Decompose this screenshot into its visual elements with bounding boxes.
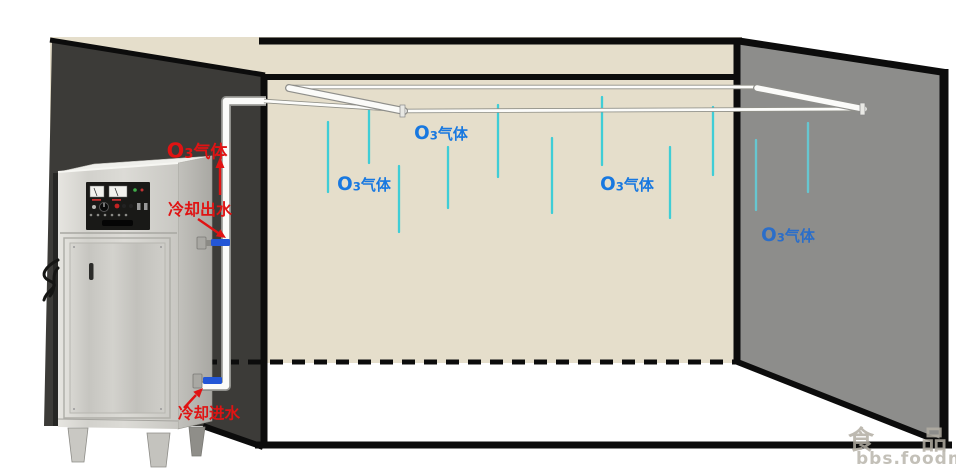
indicator-light-red [141,189,144,192]
ozone-room-diagram: O3气体 冷却出水 冷却进水 O3气体 O3气体 O3气体 O3气体 食 品 论… [0,0,956,472]
panel-button[interactable] [122,204,126,208]
pipe-joint-cap [400,105,405,117]
door-screw [73,246,75,248]
o3-gas-label-machine: O3气体 [167,141,228,162]
mini-toggle[interactable] [144,203,148,210]
valve-fitting-lower [193,374,202,388]
machine-control-panel [86,182,150,230]
watermark-url: bbs.foodma [856,449,956,469]
door-screw [160,408,162,410]
ceiling-pipe-near [403,109,864,111]
panel-button-red[interactable] [115,204,120,209]
cooling-valve-lower-handle[interactable] [203,377,222,384]
o3-gas-label-room-4: O3气体 [761,227,815,245]
machine-leg [68,428,88,462]
panel-button[interactable] [92,205,96,209]
indicator-light-green [133,188,137,192]
cooling-water-in-label: 冷却进水 [178,406,240,422]
door-handle[interactable] [89,263,94,280]
cooling-valve-upper-handle[interactable] [211,239,230,246]
pipe-joint-cap [860,103,865,115]
o3-gas-label-room-1: O3气体 [414,125,468,143]
door-screw [73,408,75,410]
door-screw [160,246,162,248]
panel-button[interactable] [129,204,133,208]
mini-toggle[interactable] [137,203,141,210]
door-panel[interactable] [70,243,165,413]
meter-label-strip [92,199,101,201]
cooling-water-out-label: 冷却出水 [168,202,232,218]
meter-label-strip [112,199,121,201]
o3-gas-label-room-2: O3气体 [337,176,391,194]
panel-vent-slot [102,220,133,226]
valve-fitting-upper [197,237,206,249]
machine-leg [147,433,170,467]
machine-door [64,238,170,418]
o3-gas-label-room-3: O3气体 [600,176,654,194]
machine-leg-back [189,427,205,456]
